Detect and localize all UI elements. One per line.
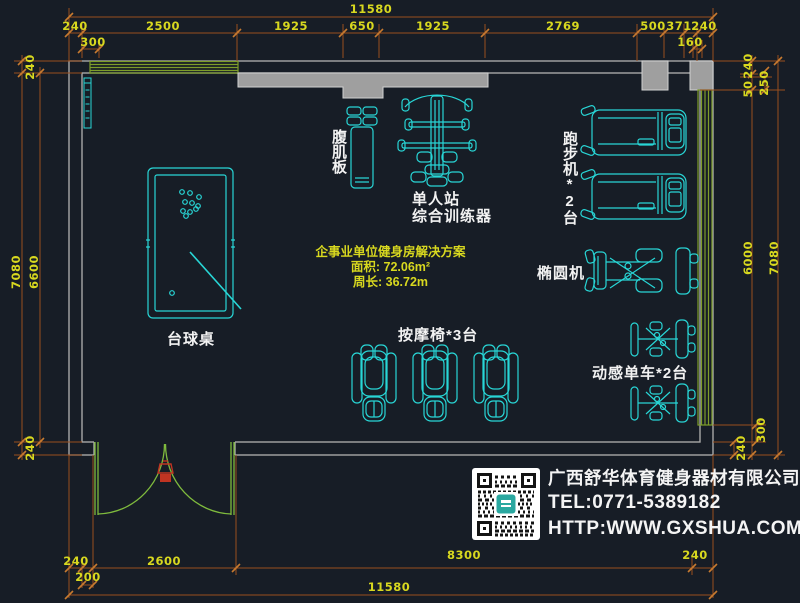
dim-top-sub: 160 (677, 35, 703, 49)
label-ab-board: 腹肌板 (330, 129, 346, 174)
dim-bottom-sub: 200 (75, 570, 101, 584)
dim-top-seg: 1925 (274, 19, 308, 33)
dim-right-inner: 6000 (741, 241, 755, 275)
dim-top-seg: 240 (62, 19, 88, 33)
dim-bottom-seg: 2600 (147, 554, 181, 568)
cad-floorplan-canvas: 11580 240 2500 1925 650 1925 2769 500 37… (0, 0, 800, 603)
dim-right-wall-bottom: 240 (734, 435, 748, 461)
company-tel: TEL:0771-5389182 (548, 490, 800, 516)
spin-bike-icon (631, 384, 695, 422)
wall-band (238, 73, 488, 98)
window-top-icon (90, 62, 238, 74)
dim-top-seg: 650 (349, 19, 375, 33)
wall-fixture-icon (84, 78, 91, 128)
elliptical-machine-icon (584, 248, 698, 294)
qr-code (472, 468, 540, 540)
dim-left-wall-top: 240 (23, 54, 37, 80)
columns (642, 61, 713, 90)
spin-bike-icon (631, 320, 695, 358)
billiard-table-icon (146, 168, 241, 318)
dim-top-seg: 371 (666, 19, 692, 33)
label-spin-bike: 动感单车*2台 (592, 362, 688, 383)
dim-bottom-seg: 8300 (447, 548, 481, 562)
label-massage: 按摩椅*3台 (398, 324, 478, 345)
plan-summary: 企事业单位健身房解决方案 面积: 72.06m² 周长: 36.72m (308, 245, 473, 290)
treadmill-icon (580, 105, 686, 156)
qr-logo (497, 495, 516, 514)
dim-left-inner: 6600 (27, 255, 41, 289)
massage-chair-icon (413, 345, 457, 421)
plan-summary-area: 面积: 72.06m² (308, 260, 473, 275)
label-billiard: 台球桌 (167, 328, 215, 349)
multi-station-trainer-icon (398, 95, 476, 186)
massage-chair-icon (474, 345, 518, 421)
dim-left-wall-bottom: 240 (23, 435, 37, 461)
ab-board-icon (347, 107, 377, 188)
dim-right-column: 250 (757, 70, 771, 96)
dim-bottom-total: 11580 (368, 580, 411, 594)
dim-bottom-seg: 240 (682, 548, 708, 562)
dim-right-gap: 50 (741, 80, 755, 97)
company-info: 广西舒华体育健身器材有限公司 TEL:0771-5389182 HTTP:WWW… (548, 466, 800, 542)
plan-summary-title: 企事业单位健身房解决方案 (308, 245, 473, 260)
dim-top-seg: 500 (640, 19, 666, 33)
dim-right-wall-top: 240 (741, 53, 755, 79)
dim-right-window-offset: 300 (754, 417, 768, 443)
dim-top-total: 11580 (350, 2, 393, 16)
dim-right-outer: 7080 (767, 241, 781, 275)
company-web: HTTP:WWW.GXSHUA.COM (548, 516, 800, 542)
treadmill-icon (580, 169, 686, 220)
label-trainer-2: 综合训练器 (412, 205, 492, 226)
dim-top-seg: 1925 (416, 19, 450, 33)
massage-chair-icon (352, 345, 396, 421)
dim-top-sub: 300 (80, 35, 106, 49)
label-treadmill: 跑步机*2台 (561, 131, 577, 225)
dim-top-seg: 2769 (546, 19, 580, 33)
plan-summary-perimeter: 周长: 36.72m (308, 275, 473, 290)
dim-bottom-seg: 240 (63, 554, 89, 568)
label-elliptical: 椭圆机 (537, 262, 585, 283)
dim-left-outer: 7080 (9, 255, 23, 289)
dim-top-seg: 2500 (146, 19, 180, 33)
company-name: 广西舒华体育健身器材有限公司 (548, 466, 800, 490)
dim-top-seg: 240 (691, 19, 717, 33)
